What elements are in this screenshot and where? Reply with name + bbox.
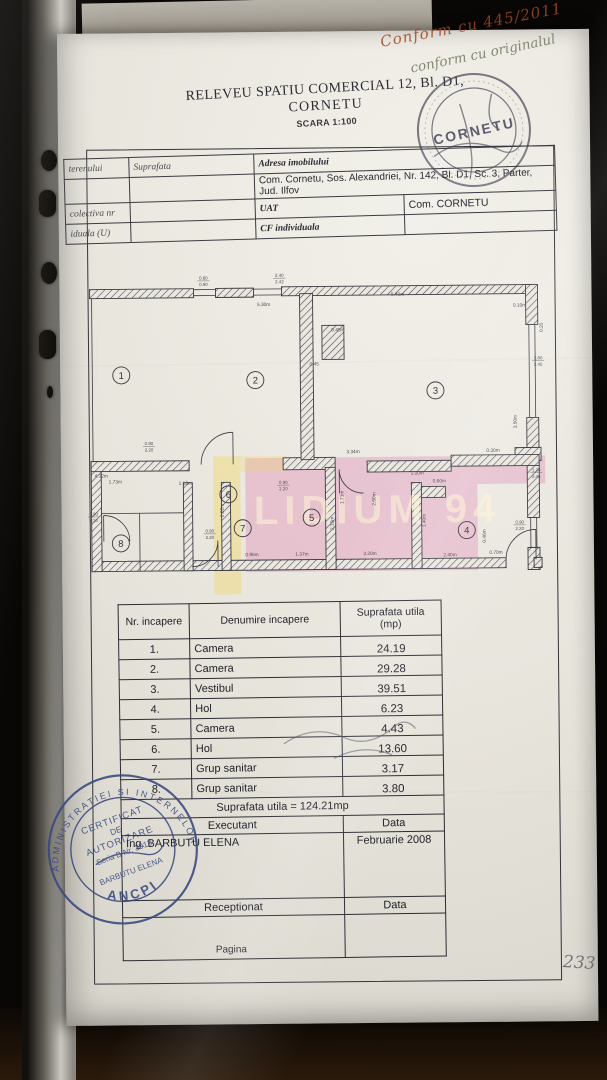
svg-text:1.40m: 1.40m [422, 514, 428, 527]
dim-label: 5.30m [257, 302, 270, 308]
svg-text:5.40m: 5.40m [391, 292, 404, 298]
header-left-label-1: terenului [64, 158, 130, 180]
svg-text:2.42: 2.42 [275, 279, 284, 284]
cell-nr: 3. [119, 679, 190, 700]
svg-text:3.50m: 3.50m [513, 415, 519, 428]
svg-text:0.10m: 0.10m [513, 303, 526, 309]
punch-hole [47, 386, 53, 398]
pen-squiggle [273, 703, 424, 774]
dim-label: 0.20 [539, 322, 545, 332]
cell-nr: 2. [119, 659, 190, 680]
cell-name: Camera [190, 656, 341, 678]
svg-text:2.82m: 2.82m [220, 504, 226, 517]
dim-label: 0.902.20 [204, 528, 216, 540]
svg-text:1.20: 1.20 [532, 467, 541, 472]
svg-text:4.32m: 4.32m [95, 474, 108, 480]
header-area: Suprafata utila(mp) [340, 600, 442, 636]
dim-label: 2.402.42 [273, 273, 285, 285]
dim-label: 0.10m [513, 303, 526, 309]
document-page: Conform cu 445/2011 conform cu originalu… [57, 29, 598, 1026]
dim-label: 1.202.45 [530, 467, 542, 479]
svg-text:2.20: 2.20 [145, 447, 154, 452]
cell-area: 39.51 [341, 675, 442, 696]
svg-text:0.90: 0.90 [205, 529, 214, 534]
svg-text:2.20: 2.20 [279, 486, 288, 491]
dim-label: 0.45 [309, 361, 319, 367]
svg-text:0.90: 0.90 [279, 480, 288, 485]
dim-label: 0.902.20 [277, 480, 289, 492]
cell-nr: 1. [119, 639, 190, 660]
svg-text:0.90: 0.90 [199, 282, 208, 287]
dim-label: 0.902.20 [88, 512, 100, 524]
dim-label: 1.71m [339, 491, 345, 504]
cell-area: 24.19 [340, 635, 441, 656]
svg-text:2.20: 2.20 [89, 518, 98, 523]
svg-text:0.45m: 0.45m [331, 327, 344, 333]
dim-label: 0.902.20 [143, 441, 155, 453]
header-name: Denumire incapere [189, 601, 340, 638]
empty-cell [129, 174, 255, 203]
svg-text:0.96m: 0.96m [245, 552, 258, 558]
dim-label: 1.12m [179, 481, 192, 487]
room-number: 2 [253, 375, 258, 386]
room-number: 1 [119, 371, 124, 382]
svg-text:0.60: 0.60 [199, 276, 208, 281]
svg-text:1.12m: 1.12m [179, 481, 192, 487]
svg-text:2.60m: 2.60m [371, 492, 377, 505]
dim-label: 2.40m [443, 552, 456, 558]
svg-text:2.45: 2.45 [532, 474, 541, 479]
header-nr: Nr. incapere [118, 604, 190, 640]
dim-label: 2.15m [330, 517, 336, 530]
room-number: 5 [309, 513, 314, 524]
cf-label: CF individuala [256, 215, 406, 239]
dim-label: 0.30m [486, 448, 499, 454]
cell-area: 29.28 [341, 655, 442, 676]
punch-hole [39, 190, 56, 217]
dim-label: 4.32m [95, 474, 108, 480]
cell-nr: 5. [120, 719, 191, 740]
svg-text:2.80: 2.80 [534, 355, 543, 360]
room-number: 6 [226, 490, 231, 501]
dim-label: 5.40m [391, 292, 404, 298]
photo-background: Conform cu 445/2011 conform cu originalu… [0, 0, 607, 1080]
header-left-label-4: iduala (U) [66, 223, 132, 245]
header-left-label-2 [64, 178, 130, 205]
dim-label: 1.00m [411, 470, 424, 476]
dim-label: 2.82m [220, 504, 226, 517]
svg-text:2.20: 2.20 [206, 535, 215, 540]
svg-text:0.90: 0.90 [145, 441, 154, 446]
svg-text:0.46m: 0.46m [482, 529, 488, 542]
svg-text:2.45: 2.45 [534, 362, 543, 367]
dim-label: 3.34m [346, 449, 359, 455]
punch-hole [41, 150, 57, 171]
svg-text:0.45: 0.45 [309, 361, 319, 367]
svg-text:2.15m: 2.15m [330, 517, 336, 530]
cell-name: Camera [190, 636, 341, 658]
dim-label: 1.37m [295, 552, 308, 558]
svg-text:1.73m: 1.73m [109, 479, 122, 485]
empty-cell [345, 913, 447, 957]
svg-text:5.30m: 5.30m [257, 302, 270, 308]
dim-label: 1.73m [109, 479, 122, 485]
pagina-label: Pagina [216, 944, 247, 955]
svg-text:1.00m: 1.00m [411, 470, 424, 476]
header-info-table: terenului Suprafata Adresa imobilului Co… [63, 145, 557, 245]
svg-text:1.37m: 1.37m [295, 552, 308, 558]
dim-label: 2.60m [371, 492, 377, 505]
svg-text:1.71m: 1.71m [339, 491, 345, 504]
dim-label: 2.802.45 [532, 355, 544, 367]
svg-text:0.90: 0.90 [515, 520, 524, 525]
cell-area: 3.80 [342, 775, 443, 796]
floor-plan: LIDIUM 94 12345678 5.30m5.40m0.600.902.4… [85, 269, 560, 598]
svg-text:0.60m: 0.60m [433, 478, 446, 484]
data-label: Data [343, 814, 444, 832]
svg-text:0.70m: 0.70m [489, 550, 502, 556]
dim-label: 0.600.90 [197, 276, 209, 288]
room-number: 8 [118, 539, 123, 550]
room-number: 4 [464, 525, 469, 536]
dim-label: 1.40m [422, 514, 428, 527]
dim-label: 0.60m [433, 478, 446, 484]
dim-label: 0.70m [489, 550, 502, 556]
table-header-row: Nr. incapereDenumire incapereSuprafata u… [118, 600, 441, 640]
cell-name: Vestibul [190, 676, 341, 698]
room-number: 7 [240, 524, 245, 535]
header-left-label-3: colectiva nr [65, 203, 131, 225]
cell-name: Grup sanitar [192, 776, 343, 798]
dim-label: 3.50m [513, 415, 519, 428]
punch-hole [39, 330, 56, 359]
svg-text:2.20: 2.20 [515, 526, 524, 531]
cell-nr: 4. [119, 699, 190, 720]
handwritten-page-number: 233 [562, 952, 596, 974]
empty-cell [404, 210, 557, 234]
svg-text:0.90: 0.90 [89, 512, 98, 517]
room-number: 3 [433, 386, 438, 397]
punch-hole [41, 262, 57, 284]
svg-text:3.20m: 3.20m [363, 551, 376, 557]
dim-label: 3.20m [363, 551, 376, 557]
date-value: Februarie 2008 [343, 831, 445, 897]
data-label-2: Data [344, 896, 445, 914]
svg-text:0.20: 0.20 [539, 322, 545, 332]
dim-label: 0.902.20 [514, 520, 526, 532]
svg-text:2.40m: 2.40m [443, 552, 456, 558]
dim-label: 0.45m [331, 327, 344, 333]
empty-cell [131, 219, 257, 243]
svg-text:2.40: 2.40 [275, 273, 284, 278]
svg-text:3.34m: 3.34m [346, 449, 359, 455]
dim-label: 0.46m [482, 529, 488, 542]
svg-text:0.30m: 0.30m [486, 448, 499, 454]
dim-label: 0.96m [245, 552, 258, 558]
